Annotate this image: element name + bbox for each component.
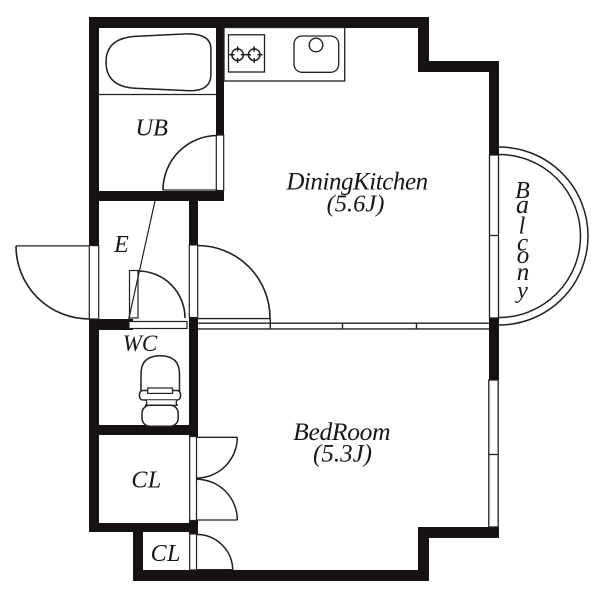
svg-text:E: E <box>113 232 129 258</box>
svg-text:CL: CL <box>151 541 181 567</box>
svg-text:UB: UB <box>135 114 168 141</box>
svg-text:(5.6J): (5.6J) <box>327 191 385 218</box>
svg-text:CL: CL <box>131 467 161 493</box>
svg-text:WC: WC <box>123 331 158 356</box>
svg-text:(5.3J): (5.3J) <box>313 441 372 468</box>
svg-text:y: y <box>515 278 528 304</box>
